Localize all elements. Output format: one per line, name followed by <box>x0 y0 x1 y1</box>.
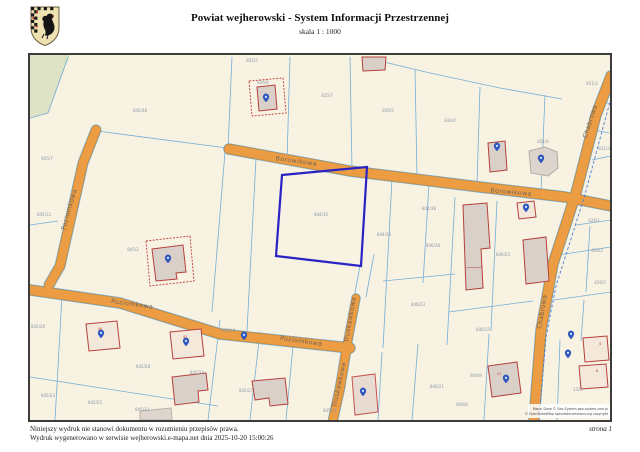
parcel-number-label: 844/35 <box>314 212 329 217</box>
parcel-number-label: 831/4 <box>537 139 549 144</box>
print-page: Powiat wejherowski - System Informacji P… <box>0 0 640 452</box>
parcel-number-label: 831/2 <box>586 81 598 86</box>
parcel-number-label: 845/21 <box>323 408 338 413</box>
parcel-number-label: 845/2 <box>127 247 139 252</box>
parcel-number-label: 846/25 <box>496 252 511 257</box>
parcel-number-label: 845/19 <box>221 328 236 333</box>
map-attribution: Mapa: Dane © Geo-System geo-system.com.p… <box>525 407 609 416</box>
parcel-number-label: 845/28 <box>136 364 151 369</box>
address-number-label: 40 <box>98 327 103 331</box>
address-number-label: 42 <box>183 335 188 339</box>
building <box>583 336 609 362</box>
page-number: strona 1 <box>589 425 612 433</box>
parcel-number-label: 836/6 <box>257 80 269 85</box>
scale-label: skala 1 : 1000 <box>0 27 640 36</box>
parcel-number-label: 426/3 <box>594 280 606 285</box>
map-canvas[interactable]: 845/48845/7835/2836/6835/7836/5836/4831/… <box>30 55 610 420</box>
building <box>529 147 558 176</box>
parcel-number-label: 846/21 <box>430 384 445 389</box>
parcel-number-label: 845/24 <box>190 370 205 375</box>
parcel-number-label: 845/26 <box>31 324 46 329</box>
parcel-number-label: 835/2 <box>246 58 258 63</box>
page-title: Powiat wejherowski - System Informacji P… <box>0 12 640 24</box>
attribution-line: Mapa: Dane © Geo-System geo-system.com.p… <box>533 407 608 411</box>
parcel-number-label: 844/33 <box>377 232 392 237</box>
parcel-number-label: 846/23 <box>411 302 426 307</box>
building <box>523 237 549 284</box>
parcel-number-label: 845/33 <box>135 407 150 412</box>
parcel-number-label: 835/7 <box>321 93 333 98</box>
building <box>352 374 378 415</box>
disclaimer-line2: Wydruk wygenerowano w serwisie wejherows… <box>30 434 274 443</box>
footer-disclaimer: Niniejszy wydruk nie stanowi dokumentu w… <box>30 425 274 443</box>
parcel-number-label: 836/5 <box>382 108 394 113</box>
map-viewport[interactable]: 845/48845/7835/2836/6835/7836/5836/4831/… <box>28 53 612 422</box>
building <box>86 321 120 351</box>
building <box>362 57 386 71</box>
parcel-number-label: 1323 <box>573 387 584 392</box>
parcel-number-label: 845/27 <box>239 388 254 393</box>
parcel-number-label: 846/28 <box>426 243 441 248</box>
address-number-label: 12 <box>497 372 502 376</box>
parcel-number-label: 846/8 <box>456 402 468 407</box>
map-background <box>30 55 610 420</box>
building <box>579 364 608 389</box>
parcel-number-label: 845/7 <box>41 156 53 161</box>
parcel-number-label: 845/25 <box>88 400 103 405</box>
parcel-number-label: 845/12 <box>37 212 52 217</box>
parcel-number-label: 844/38 <box>422 206 437 211</box>
parcel-number-label: 831/3 <box>598 146 610 151</box>
parcel-number-label: 836/4 <box>444 118 456 123</box>
parcel-number-label: 426/1 <box>588 218 600 223</box>
disclaimer-line1: Niniejszy wydruk nie stanowi dokumentu w… <box>30 425 274 434</box>
parcel-number-label: 846/15 <box>476 327 491 332</box>
parcel-number-label: 845/48 <box>133 108 148 113</box>
parcel-number-label: 426/2 <box>591 248 603 253</box>
attribution-line: © OpenStreetMap opendatacommons.org copy… <box>525 412 609 416</box>
parcel-number-label: 846/9 <box>470 373 482 378</box>
parcel-number-label: 845/23 <box>41 393 56 398</box>
